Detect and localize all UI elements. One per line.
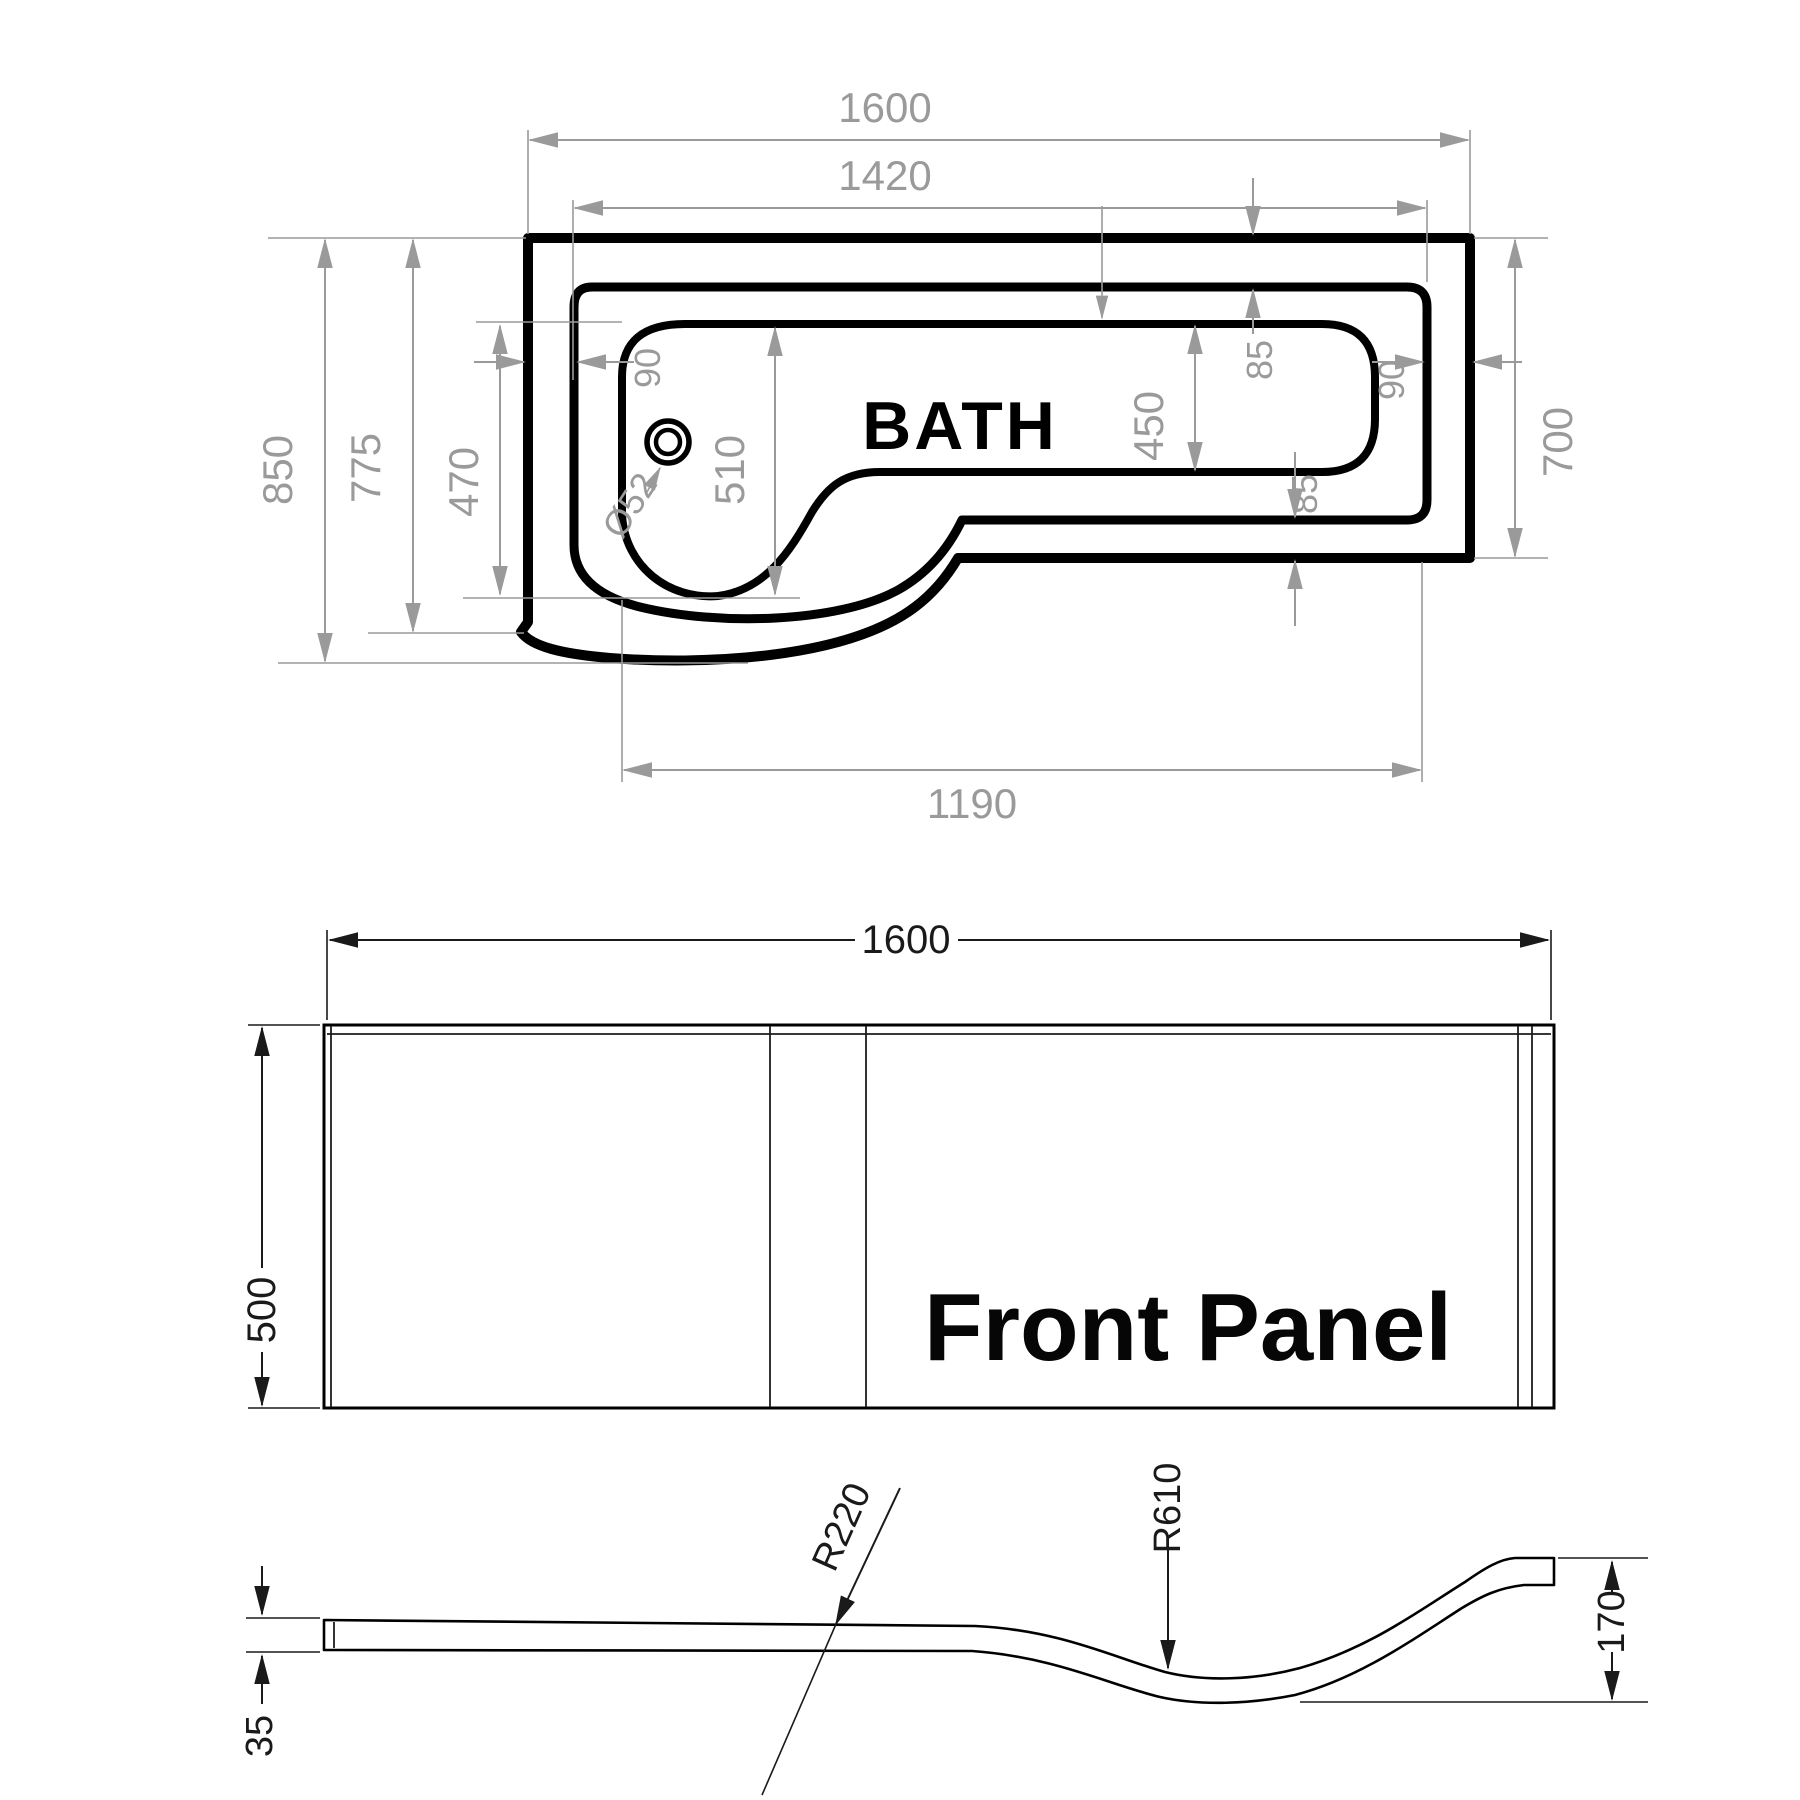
dim-text-170: 170 bbox=[1591, 1590, 1633, 1653]
dim-text-1190: 1190 bbox=[927, 780, 1017, 827]
drawing-canvas: BATH 1600 1420 850 775 470 5 bbox=[0, 0, 1800, 1800]
dim-text-1420: 1420 bbox=[838, 152, 931, 199]
panel-profile-outline bbox=[324, 1558, 1554, 1703]
dim-text-470: 470 bbox=[440, 447, 487, 517]
dim-text-35: 35 bbox=[239, 1715, 281, 1757]
dim-text-r610: R610 bbox=[1147, 1463, 1189, 1554]
dim-text-panel-1600: 1600 bbox=[862, 918, 951, 962]
dim-text-85-top: 85 bbox=[1239, 340, 1280, 380]
dim-text-510: 510 bbox=[706, 435, 753, 505]
dim-text-r220: R220 bbox=[804, 1477, 879, 1577]
side-profile-view bbox=[324, 1558, 1554, 1703]
dim-text-90-left: 90 bbox=[627, 348, 668, 388]
front-panel-view: Front Panel bbox=[324, 1025, 1554, 1408]
dim-text-450: 450 bbox=[1125, 391, 1172, 461]
dim-text-90-right: 90 bbox=[1371, 360, 1412, 400]
dim-text-1600: 1600 bbox=[838, 84, 931, 131]
front-panel-title: Front Panel bbox=[924, 1274, 1452, 1381]
dim-text-85-bottom: 85 bbox=[1284, 474, 1325, 514]
dim-text-700: 700 bbox=[1534, 407, 1581, 477]
bath-technical-drawing: BATH 1600 1420 850 775 470 5 bbox=[0, 0, 1800, 1800]
dim-text-panel-500: 500 bbox=[240, 1277, 284, 1344]
dim-text-850: 850 bbox=[254, 435, 301, 505]
top-view-title: BATH bbox=[862, 388, 1058, 464]
dim-text-775: 775 bbox=[342, 433, 389, 503]
top-view: BATH bbox=[521, 238, 1470, 660]
